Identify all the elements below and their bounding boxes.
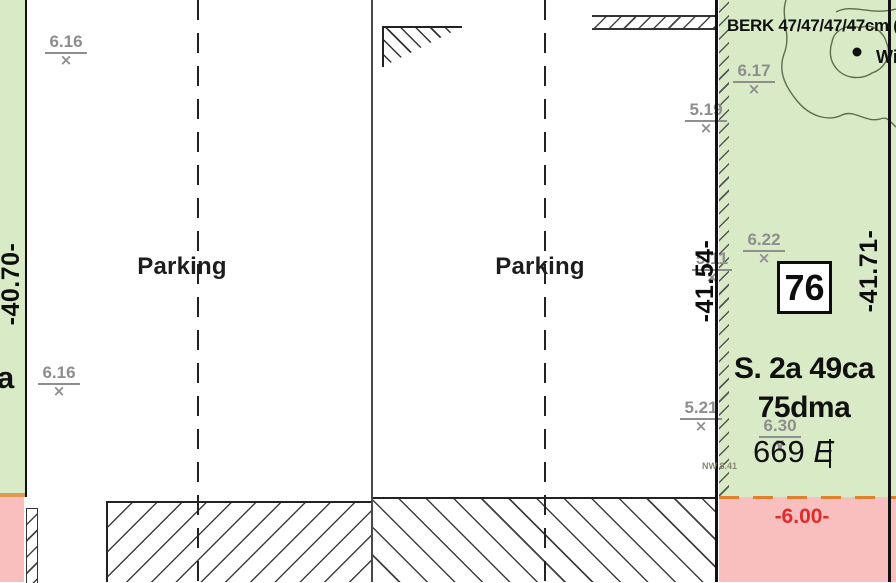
parking-label-right: Parking: [465, 253, 615, 281]
tree-species-note-right: Wi: [876, 47, 896, 68]
hatched-triangle-left-edge: [382, 26, 384, 67]
elevation-marker: 6.16×: [29, 364, 89, 400]
elevation-marker: 5.19×: [676, 101, 736, 137]
survey-cross-icon: ×: [748, 81, 761, 97]
hatched-strip-left: [26, 508, 38, 583]
parcel-number: 76: [784, 267, 824, 309]
dimension-label-right: -41.71-: [854, 206, 884, 336]
zone-divider-left: [0, 493, 26, 497]
site-plan-canvas: { "colors": { "green": "#d9ebc6", "pink"…: [0, 0, 896, 582]
hatched-triangle: [382, 27, 462, 67]
plot-line-middle: [371, 0, 373, 582]
corner-letter: a: [0, 360, 14, 396]
text-cursor: [829, 439, 831, 468]
elevation-marker: 6.17×: [724, 62, 784, 98]
tree-trunk-dot: [853, 48, 862, 57]
survey-note: NW 8.41: [702, 461, 737, 471]
parcel-area-block: S. 2a 49ca 75dma: [718, 350, 890, 428]
level-label: -6.00-: [752, 505, 852, 529]
dimension-label-left: -40.70-: [0, 219, 26, 349]
parcel-area-dma: 75dma: [718, 388, 890, 428]
parcel-number-box: 76: [777, 261, 832, 314]
survey-cross-icon: ×: [60, 52, 73, 68]
hatched-wall-band: [592, 15, 716, 30]
parcel-area-size: S. 2a 49ca: [718, 350, 890, 388]
tree-species-note: BERK 47/47/47/47cm (: [727, 16, 896, 36]
address-text[interactable]: 669 E: [753, 434, 834, 470]
parking-divider-dashed-2: [544, 0, 546, 582]
address-number[interactable]: 669: [753, 434, 805, 469]
pink-zone-left: [0, 497, 24, 582]
elevation-marker: 6.16×: [36, 33, 96, 69]
dimension-label-middle: -41.54-: [690, 216, 720, 346]
parcel-line-right: [888, 0, 891, 582]
survey-cross-icon: ×: [695, 418, 708, 434]
tree-crown-top-edge: [836, 9, 896, 12]
hatched-area-left: [106, 501, 373, 582]
survey-cross-icon: ×: [758, 250, 771, 266]
survey-cross-icon: ×: [700, 120, 713, 136]
parking-label-left: Parking: [107, 253, 257, 281]
survey-cross-icon: ×: [53, 383, 66, 399]
parking-divider-dashed-1: [197, 0, 199, 582]
zone-boundary-dashed-line: [719, 496, 896, 499]
hatched-triangle-top-edge: [382, 26, 462, 28]
